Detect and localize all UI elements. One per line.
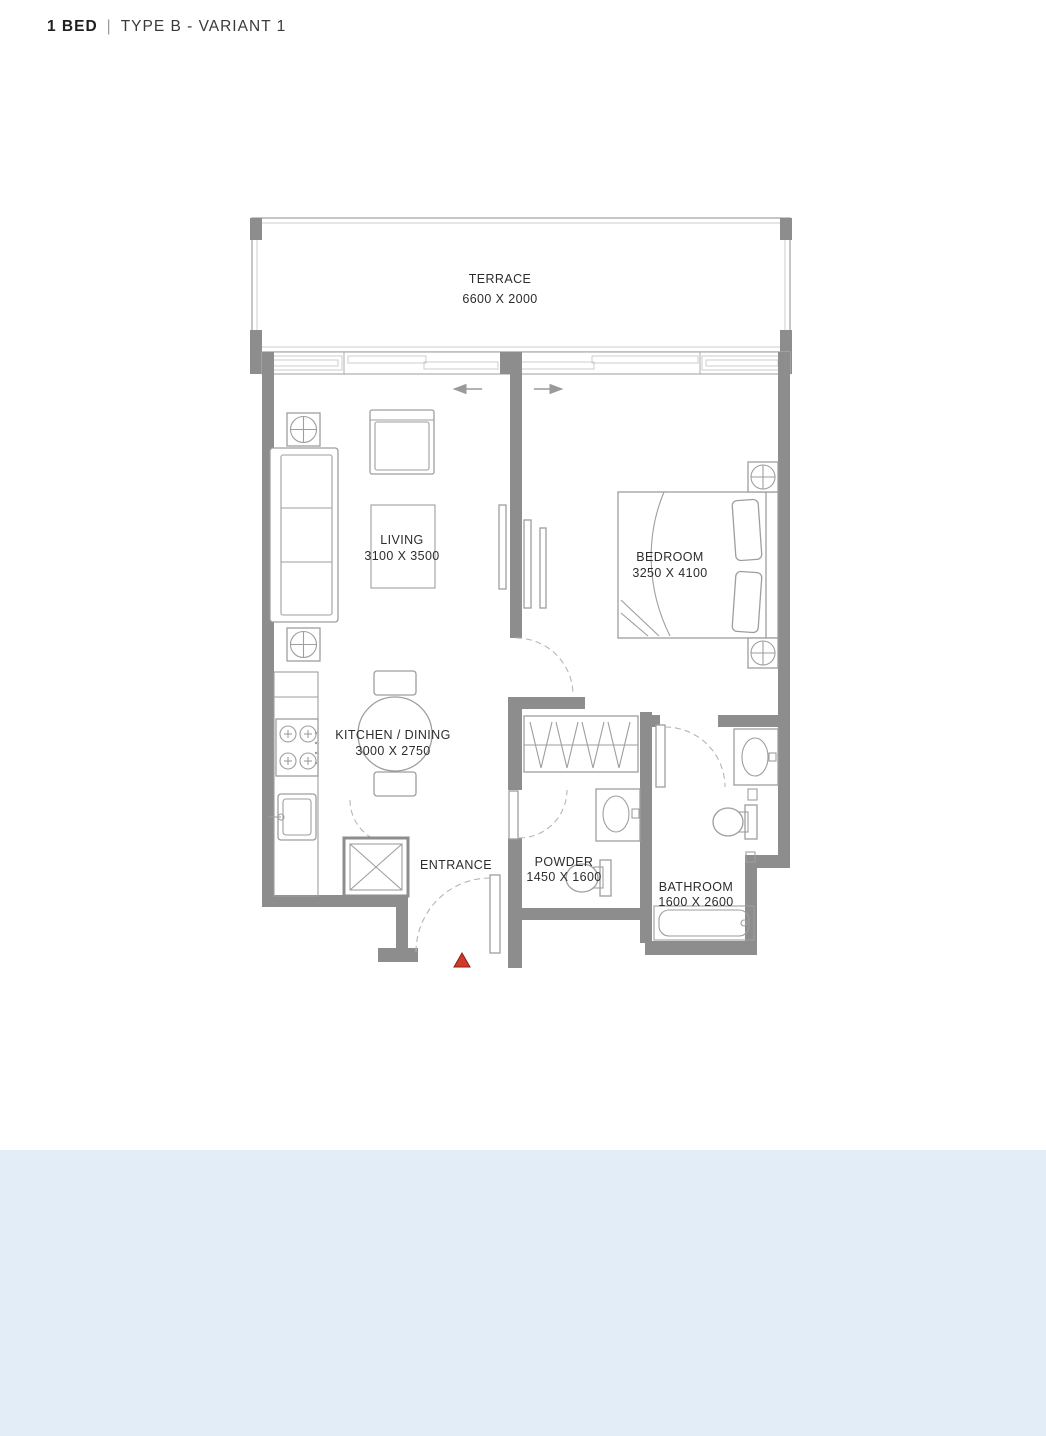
bathtub — [654, 906, 754, 940]
bathroom-accessory — [748, 789, 757, 800]
slide-direction-arrows — [454, 385, 562, 394]
kitchen-label: KITCHEN / DINING — [335, 728, 450, 742]
bed — [618, 492, 778, 638]
powder-sink — [596, 789, 640, 841]
kitchen-counter — [274, 672, 318, 896]
terrace-dims: 6600 X 2000 — [462, 292, 537, 306]
living-dims: 3100 X 3500 — [364, 549, 439, 563]
kitchen-dims: 3000 X 2750 — [355, 744, 430, 758]
summary-panel: 1 BEDROOM APARTMENT TYPE B VARIANT 1 (wi… — [0, 1150, 1046, 1436]
side-table-top — [287, 413, 320, 446]
terrace-sliding-doors — [262, 352, 790, 374]
powder-label: POWDER — [535, 855, 594, 869]
powder-dims: 1450 X 1600 — [526, 870, 601, 884]
living-label: LIVING — [380, 533, 423, 547]
nightstand-top — [748, 462, 778, 492]
shaft — [344, 838, 408, 896]
entrance-marker-icon — [454, 953, 470, 967]
wardrobe — [524, 716, 638, 772]
armchair — [370, 410, 434, 474]
entrance-label: ENTRANCE — [420, 858, 492, 872]
bathroom-dims: 1600 X 2600 — [658, 895, 733, 909]
partition-sliding-door — [499, 505, 546, 608]
nightstand-bottom — [748, 638, 778, 668]
bathroom-label: BATHROOM — [659, 880, 734, 894]
kitchen-sink — [268, 794, 316, 840]
terrace-label: TERRACE — [469, 272, 532, 286]
bathroom-sink — [734, 729, 778, 785]
side-table-bottom — [287, 628, 320, 661]
bedroom-label: BEDROOM — [636, 550, 703, 564]
bedroom-dims: 3250 X 4100 — [632, 566, 707, 580]
floor-plan: TERRACE 6600 X 2000 LIVING 3100 X 3500 B… — [0, 0, 1046, 1160]
floorplan-page: 1 BED | TYPE B - VARIANT 1 — [0, 0, 1046, 1436]
bathroom-toilet — [713, 805, 757, 839]
stove-hob — [276, 719, 318, 776]
sofa — [270, 448, 338, 622]
